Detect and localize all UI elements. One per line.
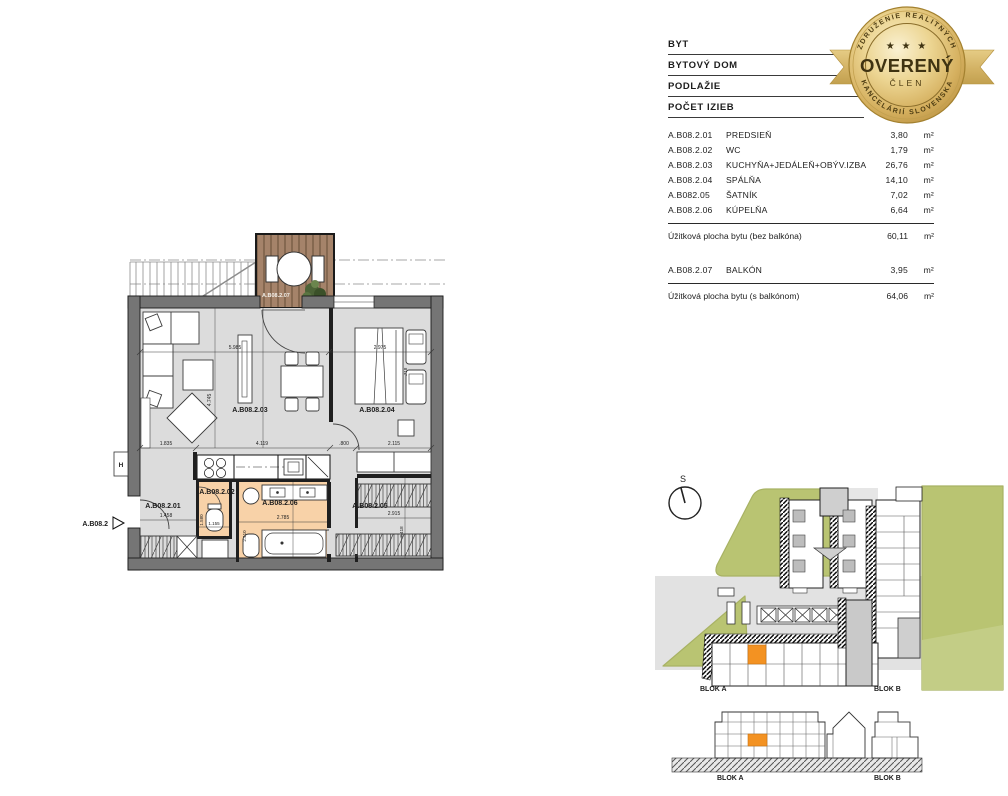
svg-text:2.975: 2.975 — [374, 345, 387, 351]
room-name: BALKÓN — [726, 265, 868, 275]
living-label: A.B08.2.03 — [232, 407, 268, 414]
north-label: S — [680, 474, 686, 484]
room-area: 3,95 — [868, 265, 908, 275]
balcony-chair-left — [266, 256, 278, 282]
spec-header-label: BYT — [668, 39, 689, 50]
verified-member-badge: ZDRUŽENIE REALITNÝCH KANCELÁRIÍ SLOVENSK… — [816, 0, 1008, 132]
room-code: A.B08.2.02 — [668, 145, 726, 155]
room-unit: m² — [908, 265, 934, 275]
svg-text:2.410: 2.410 — [242, 530, 247, 542]
room-area: 7,02 — [868, 190, 908, 200]
floor-plan: A.B08.2.07 H — [82, 234, 448, 570]
site-blok-a-label: BLOK A — [700, 686, 727, 693]
room-unit: m² — [908, 175, 934, 185]
spec-header-label: BYTOVÝ DOM — [668, 60, 738, 71]
room-unit: m² — [908, 145, 934, 155]
coffee-table — [183, 360, 213, 390]
svg-text:1.580: 1.580 — [199, 514, 204, 526]
shaft-label: H — [119, 462, 124, 469]
kitchen-counter — [197, 455, 330, 479]
divider — [668, 283, 934, 284]
hall-label: A.B08.2.01 — [145, 503, 181, 510]
compass-icon: S — [669, 474, 701, 519]
dining-table — [281, 366, 323, 397]
svg-text:2.115: 2.115 — [388, 441, 400, 447]
elevation-blok-a-label: BLOK A — [717, 775, 744, 782]
badge-subtitle: ČLEN — [890, 78, 925, 88]
elevation-blok-b-label: BLOK B — [874, 775, 901, 782]
room-area: 6,64 — [868, 205, 908, 215]
total-unit: m² — [908, 291, 934, 301]
wc-toilet — [206, 509, 223, 531]
svg-text:2.785: 2.785 — [277, 515, 290, 521]
total-unit: m² — [908, 231, 934, 241]
total-value: 60,11 — [868, 231, 908, 241]
balcony-label: A.B08.2.07 — [262, 293, 290, 299]
room-code: A.B082.05 — [668, 190, 726, 200]
elevation-blok-a — [715, 712, 825, 758]
room-area: 14,10 — [868, 175, 908, 185]
divider — [668, 223, 934, 224]
wardrobe-label: A.B08.2.05 — [352, 503, 388, 510]
balcony-row: A.B08.2.07 BALKÓN 3,95 m² — [668, 262, 934, 277]
wall-shelf — [141, 398, 150, 448]
stool — [398, 420, 414, 436]
svg-text:2.915: 2.915 — [388, 511, 401, 517]
room-name: KUCHYŇA+JEDÁLEŇ+OBÝV.IZBA — [726, 160, 868, 170]
total-label: Úžitková plocha bytu (bez balkóna) — [668, 231, 868, 241]
svg-text:1.458: 1.458 — [160, 513, 173, 519]
wc-label: A.B08.2.02 — [199, 489, 235, 496]
entry-marker: A.B08.2 — [82, 517, 124, 529]
room-name: WC — [726, 145, 868, 155]
room-area: 26,76 — [868, 160, 908, 170]
balcony-table — [277, 252, 311, 286]
svg-text:4.119: 4.119 — [256, 441, 268, 447]
svg-text:.718: .718 — [403, 367, 408, 376]
room-unit: m² — [908, 190, 934, 200]
svg-text:.800: .800 — [339, 441, 349, 447]
table-row: A.B082.05 ŠATNÍK 7,02 m² — [668, 187, 934, 202]
bedroom-window — [334, 296, 374, 308]
total-without-balcony-row: Úžitková plocha bytu (bez balkóna) 60,11… — [668, 229, 934, 243]
svg-text:1.155: 1.155 — [208, 521, 220, 526]
svg-text:4.745: 4.745 — [207, 394, 213, 407]
table-row: A.B08.2.04 SPÁLŇA 14,10 m² — [668, 172, 934, 187]
room-code: A.B08.2.04 — [668, 175, 726, 185]
railing — [130, 262, 258, 298]
shaft: H — [114, 452, 128, 476]
total-value: 64,06 — [868, 291, 908, 301]
gray-tower — [846, 600, 872, 686]
bathroom-label: A.B08.2.06 — [262, 500, 298, 507]
badge-title: OVERENÝ — [860, 55, 954, 76]
total-with-balcony-row: Úžitková plocha bytu (s balkónom) 64,06 … — [668, 289, 934, 303]
badge-stars-icon: ★ ★ ★ — [886, 41, 928, 52]
entry-arrow-icon — [113, 517, 124, 529]
room-name: SPÁLŇA — [726, 175, 868, 185]
total-label: Úžitková plocha bytu (s balkónom) — [668, 291, 868, 301]
room-code: A.B08.2.07 — [668, 265, 726, 275]
building-blok-b — [866, 487, 922, 658]
room-code: A.B08.2.01 — [668, 130, 726, 140]
room-name: ŠATNÍK — [726, 190, 868, 200]
bedroom-label: A.B08.2.04 — [359, 407, 395, 414]
balcony-chair-right — [312, 256, 324, 282]
site-blok-b-label: BLOK B — [874, 686, 901, 693]
elevation: BLOK A BLOK B — [672, 712, 922, 782]
room-unit: m² — [908, 160, 934, 170]
elevation-gable — [827, 712, 865, 758]
svg-text:2.418: 2.418 — [399, 526, 404, 538]
wc-tank — [208, 504, 221, 509]
ground-hatch — [672, 758, 922, 772]
table-row: A.B08.2.06 KÚPELŇA 6,64 m² — [668, 202, 934, 217]
site-plan: S — [655, 474, 1003, 693]
wardrobe-bottom — [336, 534, 431, 556]
site-labels: BLOK A BLOK B — [700, 686, 901, 693]
hall-wardrobe — [140, 536, 177, 558]
elevation-labels: BLOK A BLOK B — [717, 775, 901, 782]
spec-header-label: PODLAŽIE — [668, 81, 721, 92]
svg-text:1.835: 1.835 — [160, 441, 173, 447]
room-list: A.B08.2.01 PREDSIEŇ 3,80 m² A.B08.2.02 W… — [668, 127, 934, 217]
washer — [202, 540, 228, 558]
room-code: A.B08.2.06 — [668, 205, 726, 215]
room-unit: m² — [908, 205, 934, 215]
bath-washer — [243, 488, 259, 504]
elevation-highlighted-unit — [748, 734, 767, 746]
room-name: KÚPELŇA — [726, 205, 868, 215]
unit-label: A.B08.2 — [82, 521, 108, 528]
table-row: A.B08.2.03 KUCHYŇA+JEDÁLEŇ+OBÝV.IZBA 26,… — [668, 157, 934, 172]
room-code: A.B08.2.03 — [668, 160, 726, 170]
table-row: A.B08.2.02 WC 1,79 m² — [668, 142, 934, 157]
svg-text:5.985: 5.985 — [229, 345, 242, 351]
elevation-blok-b — [872, 712, 918, 758]
room-area: 1,79 — [868, 145, 908, 155]
spec-header-label: POČET IZIEB — [668, 102, 734, 113]
highlighted-unit — [748, 645, 766, 664]
